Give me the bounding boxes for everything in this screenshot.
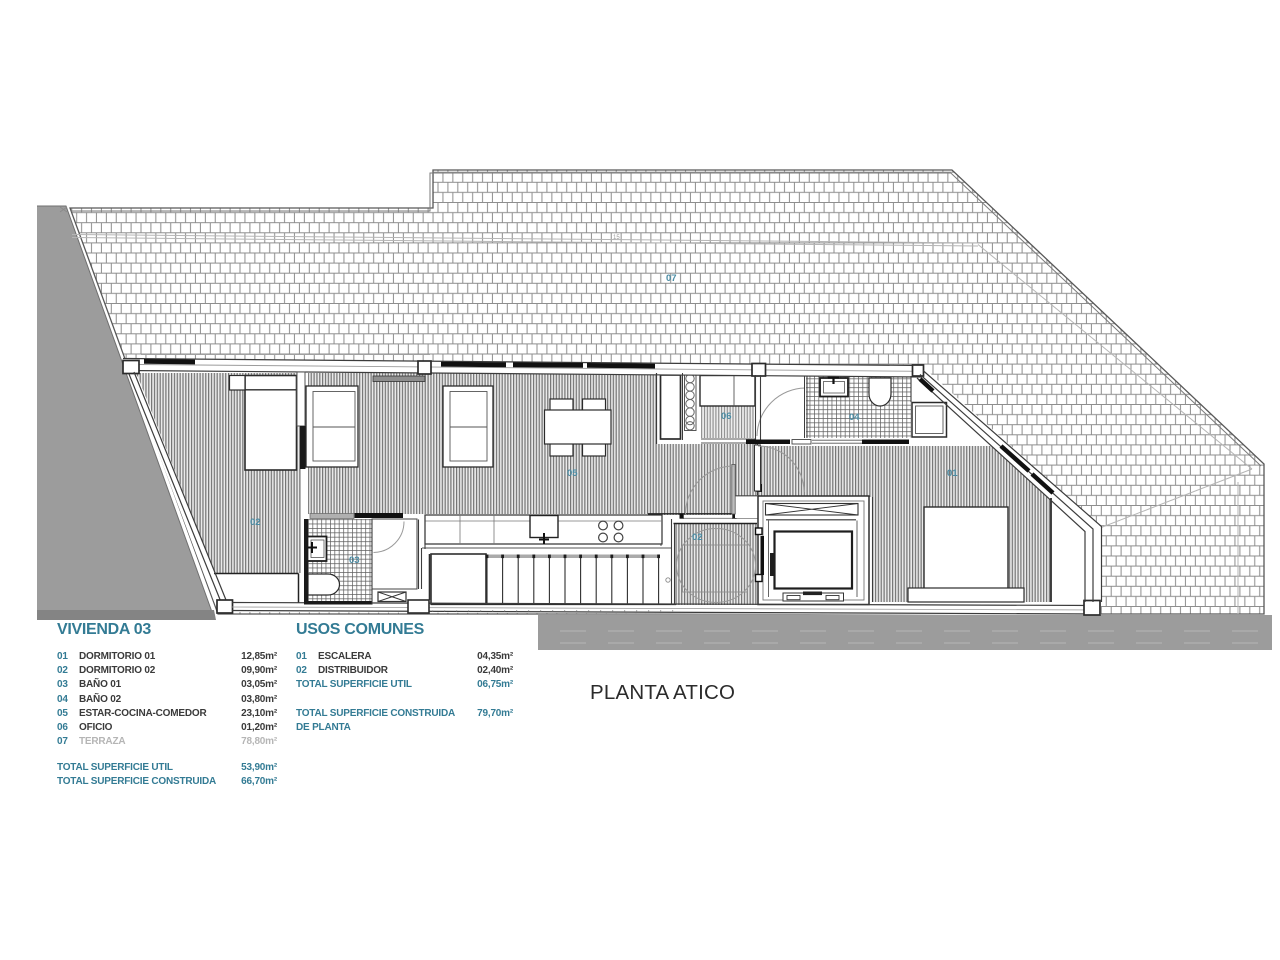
svg-text:03: 03: [349, 555, 360, 566]
svg-text:15: 15: [613, 235, 620, 241]
svg-text:07: 07: [666, 273, 677, 284]
svg-text:05: 05: [567, 468, 578, 479]
svg-text:01: 01: [947, 468, 958, 479]
svg-text:04: 04: [849, 412, 860, 423]
svg-text:02: 02: [250, 517, 261, 528]
svg-text:06: 06: [721, 411, 732, 422]
svg-text:02: 02: [692, 532, 703, 543]
